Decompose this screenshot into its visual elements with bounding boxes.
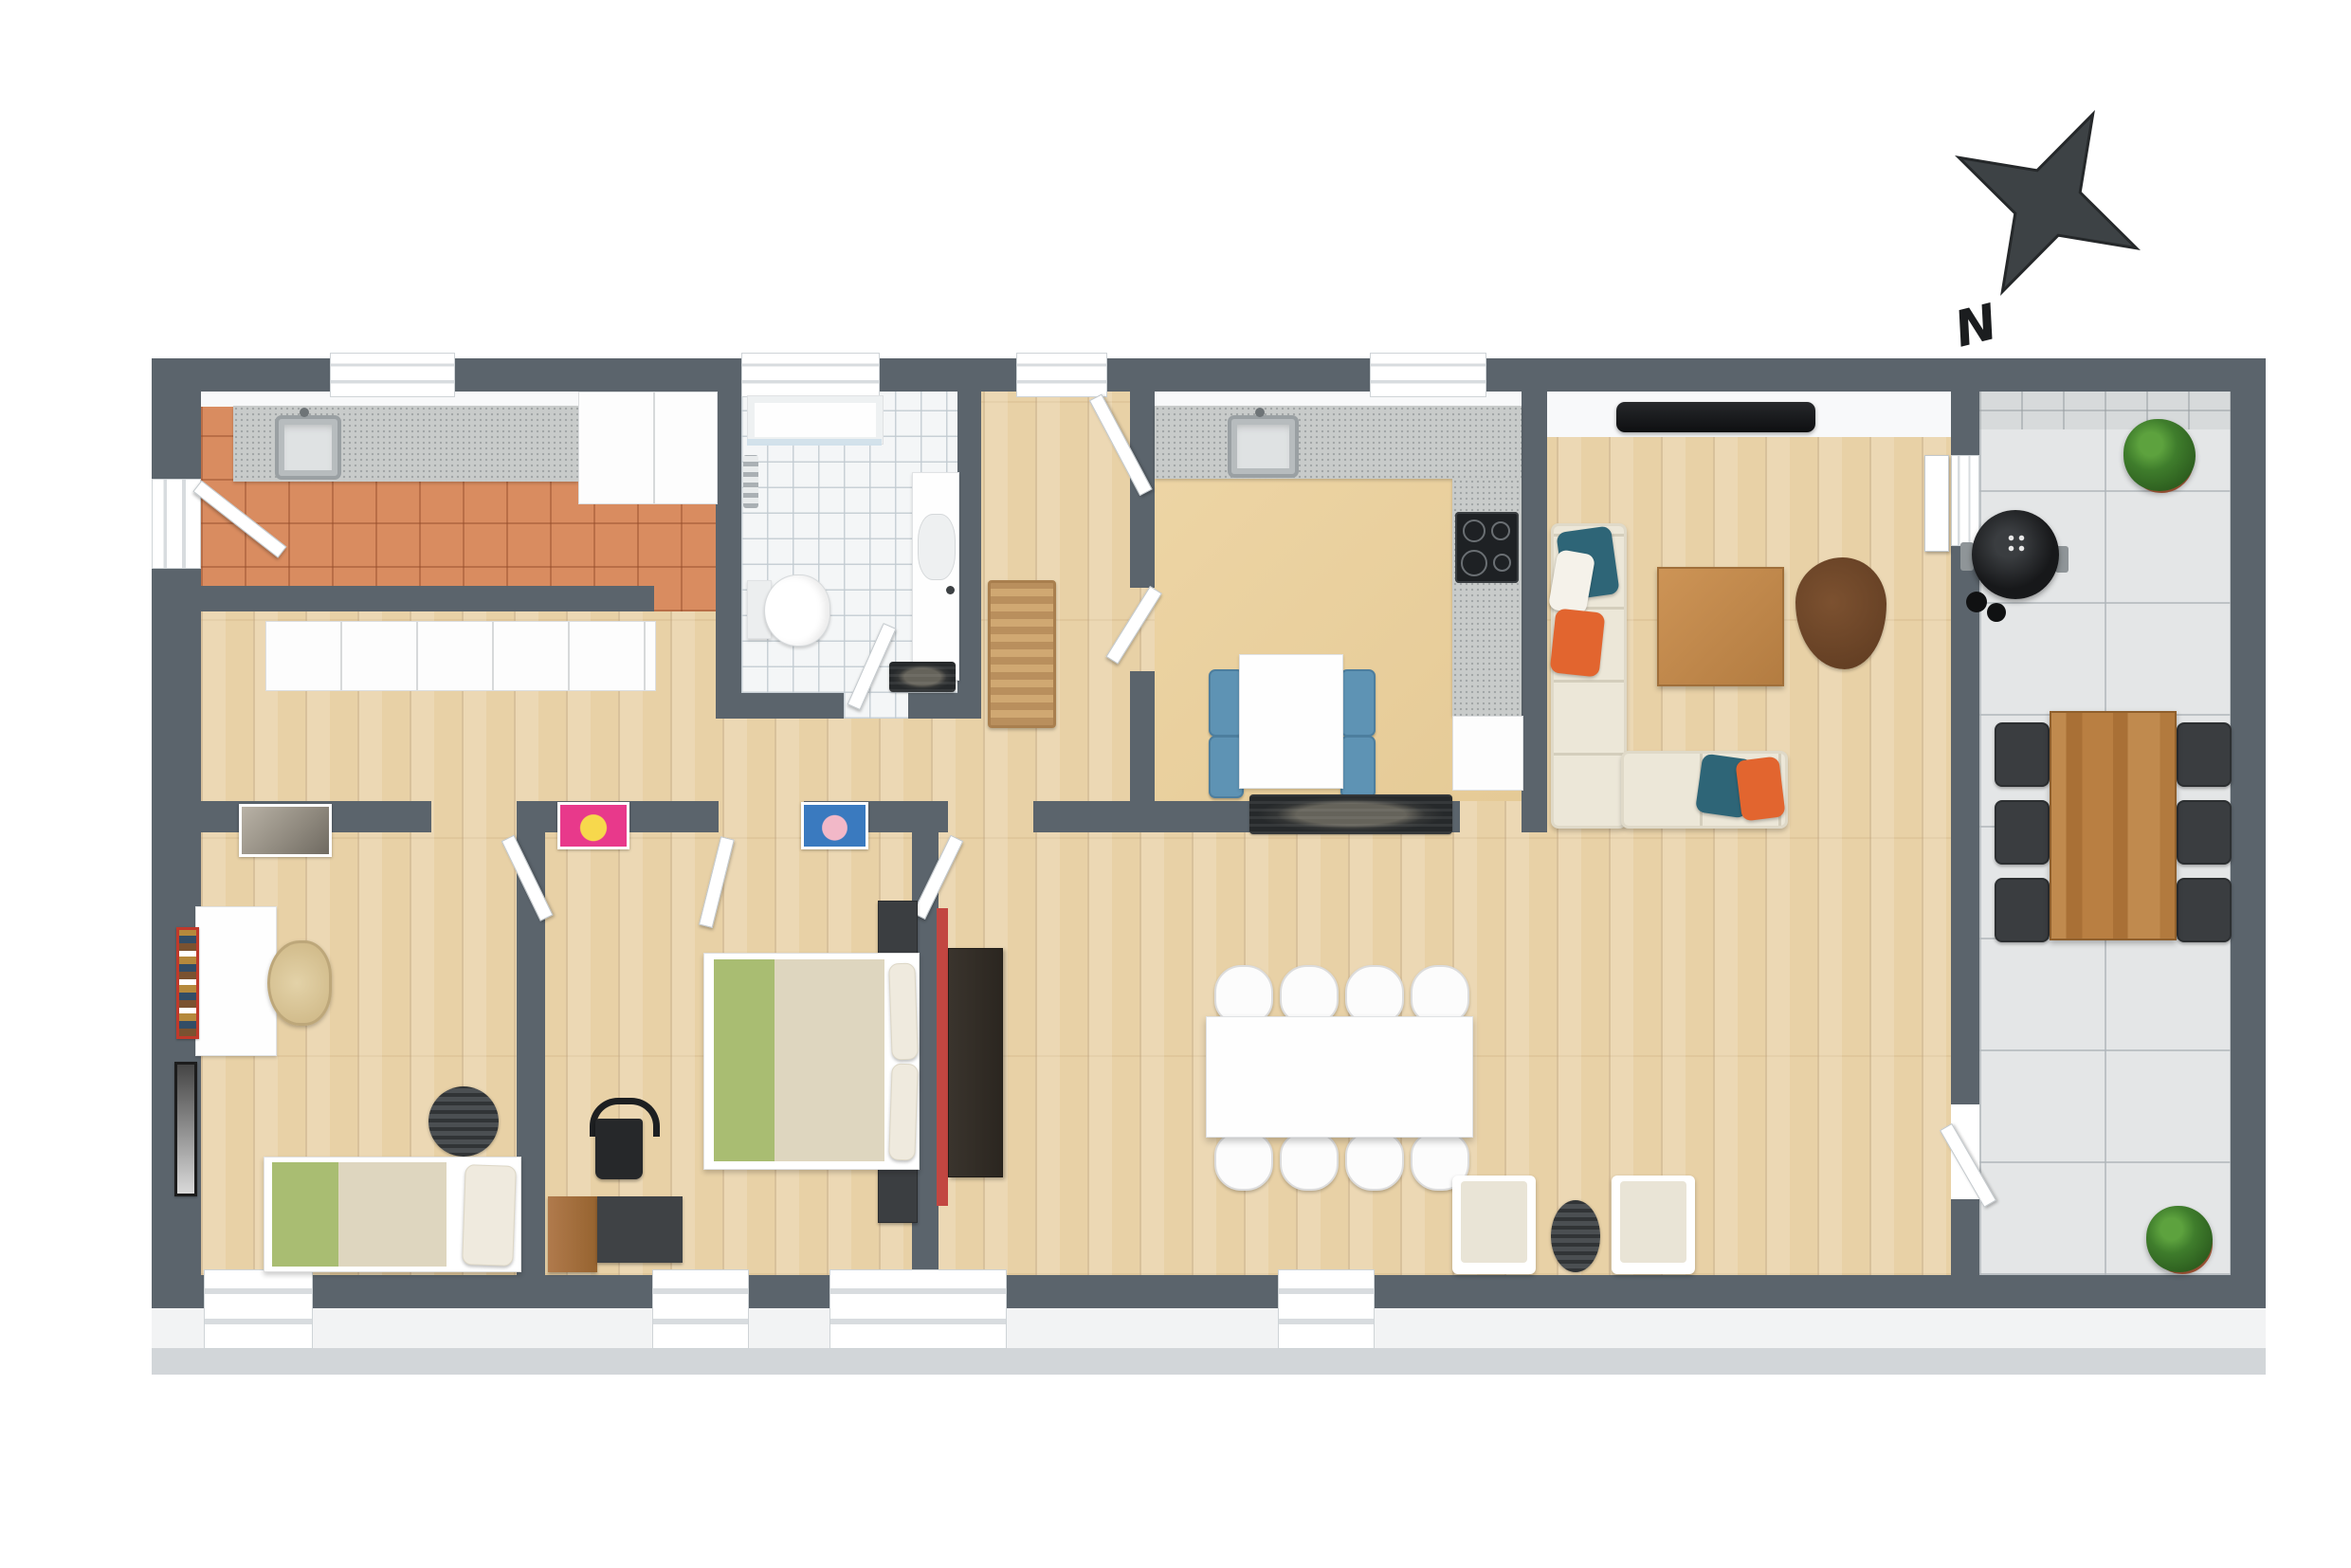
wall-facade-top xyxy=(152,358,2231,392)
kitchen2-facade-window xyxy=(1370,353,1486,397)
bedroom2-desk-wood xyxy=(548,1196,597,1272)
dining-chair-bottom-2 xyxy=(1280,1132,1339,1191)
bed-pillow-2 xyxy=(888,1064,919,1161)
oval-dark-rug xyxy=(1551,1200,1600,1272)
ground-apron xyxy=(152,1348,2266,1375)
hallway-wall-picture xyxy=(239,804,332,857)
patio-chair-left-3 xyxy=(1995,878,2050,942)
bedroom1-desk xyxy=(195,906,277,1056)
dining-chair-top-1 xyxy=(1214,965,1273,1024)
bed-blanket-beige xyxy=(338,1162,447,1267)
bedroom2-desk-dark xyxy=(597,1196,683,1263)
kitchen2-sink xyxy=(1228,415,1299,478)
wall-bottom-outer-face xyxy=(152,1308,2266,1348)
kitchen2-runner-rug xyxy=(1249,794,1452,834)
kitchen-facade-window xyxy=(330,353,455,397)
wall-patio-divider-lower xyxy=(1951,1199,1979,1275)
bedroom2-double-bed xyxy=(703,953,920,1170)
bed-blanket-green xyxy=(272,1162,338,1267)
bed-sheet xyxy=(447,1162,462,1267)
cooktop-4-burner xyxy=(1455,512,1519,583)
vanity-basin xyxy=(918,514,956,580)
bbq-kettle-body xyxy=(1972,510,2059,599)
kitchen2-base-cabinet xyxy=(1452,716,1523,791)
dark-wardrobe-red-back xyxy=(937,908,948,1206)
dining-chair-bottom-3 xyxy=(1345,1132,1404,1191)
patio-brick-band xyxy=(1979,392,2231,429)
dining-chair-top-4 xyxy=(1411,965,1469,1024)
patio-chair-right-1 xyxy=(2177,722,2232,787)
bed-pillow xyxy=(462,1164,517,1267)
towel-radiator-icon xyxy=(743,455,758,508)
shower-tray xyxy=(747,395,884,445)
dining-chair-top-3 xyxy=(1345,965,1404,1024)
vanity-faucet-icon xyxy=(946,586,955,594)
wall-bottom xyxy=(152,1275,2266,1308)
wall-right xyxy=(2231,358,2266,1308)
pop-art-poster-pink xyxy=(557,802,629,849)
bed-pillow-1 xyxy=(888,963,919,1061)
bedroom1-office-chair xyxy=(267,940,332,1026)
kitchen-tall-cabinet-fridge xyxy=(578,392,718,504)
kitchen2-chair-right-2 xyxy=(1340,736,1376,798)
compass-star-icon xyxy=(1959,114,2136,291)
patio-table xyxy=(2050,711,2177,940)
burner-icon xyxy=(1493,554,1511,572)
dining-window xyxy=(1278,1269,1375,1349)
bed-blanket-beige xyxy=(775,959,884,1161)
dining-table xyxy=(1206,1016,1473,1138)
shoe-bench xyxy=(988,580,1056,728)
patio-chair-right-3 xyxy=(2177,878,2232,942)
bedroom1-single-bed xyxy=(264,1157,521,1272)
kitchen2-counter-top xyxy=(1155,406,1522,479)
armchair-cushion xyxy=(1461,1181,1527,1263)
kitchen2-chair-right-1 xyxy=(1340,669,1376,737)
patio-plant-north-icon xyxy=(2123,419,2196,491)
patio-chair-right-2 xyxy=(2177,800,2232,865)
patio-plant-south-icon xyxy=(2146,1206,2213,1272)
toilet-bowl-icon xyxy=(764,574,830,647)
bbq-grill xyxy=(1960,508,2069,624)
kitchen-sink xyxy=(275,415,341,480)
shower-glass xyxy=(747,439,882,446)
black-framed-picture xyxy=(174,1062,197,1196)
bbq-vent-dots xyxy=(2006,533,2027,554)
kitchen2-table xyxy=(1239,654,1343,789)
bbq-wheel-1 xyxy=(1966,592,1987,612)
kitchen2-faucet-icon xyxy=(1255,408,1265,417)
burner-icon xyxy=(1491,521,1510,540)
hallway-wardrobe-row xyxy=(265,621,656,691)
bed-blanket-green xyxy=(714,959,775,1161)
bedroom2-window-2 xyxy=(829,1269,1007,1349)
wall-bath-bottom-left xyxy=(741,693,844,719)
wall-kitchen-bath-divider xyxy=(716,392,741,719)
compass-north-label: N xyxy=(1949,294,2003,355)
wall-tv xyxy=(1616,402,1815,432)
bedroom2-nightstand-top xyxy=(878,901,918,956)
bedroom2-black-chair xyxy=(586,1098,652,1187)
wall-bath-right xyxy=(957,392,981,719)
armchair-cushion xyxy=(1620,1181,1686,1263)
patio-chair-left-2 xyxy=(1995,800,2050,865)
coffee-table xyxy=(1657,567,1784,686)
compass-rose: N xyxy=(1924,61,2161,355)
bedroom1-round-rug xyxy=(428,1086,499,1157)
bedroom1-window xyxy=(204,1269,313,1349)
pop-art-poster-blue xyxy=(801,802,868,849)
dining-chair-bottom-1 xyxy=(1214,1132,1273,1191)
kitchen-faucet-icon xyxy=(300,408,309,417)
bbq-wheel-2 xyxy=(1987,603,2006,622)
dark-wardrobe xyxy=(948,948,1003,1177)
sofa-pillow-orange-2 xyxy=(1735,756,1785,821)
patio-chair-left-1 xyxy=(1995,722,2050,787)
burner-icon xyxy=(1463,520,1485,542)
chair-seat xyxy=(595,1119,643,1179)
burner-icon xyxy=(1461,550,1487,576)
red-framed-picture xyxy=(176,927,199,1039)
bedroom2-nightstand-bottom xyxy=(878,1168,918,1223)
sofa-pillow-orange-1 xyxy=(1550,608,1606,677)
armchair-2 xyxy=(1612,1176,1695,1274)
wall-kitchen-bottom xyxy=(201,586,654,611)
floor-plan: N xyxy=(0,0,2351,1568)
bedroom2-window-1 xyxy=(652,1269,749,1349)
shower-facade-window xyxy=(741,353,880,397)
bath-mat xyxy=(889,662,956,692)
living-open-door-leaf xyxy=(1924,455,1949,552)
entry-door-threshold xyxy=(1016,353,1107,397)
dining-chair-top-2 xyxy=(1280,965,1339,1024)
armchair-1 xyxy=(1452,1176,1536,1274)
wall-kitchen2-living-divider xyxy=(1522,392,1547,832)
